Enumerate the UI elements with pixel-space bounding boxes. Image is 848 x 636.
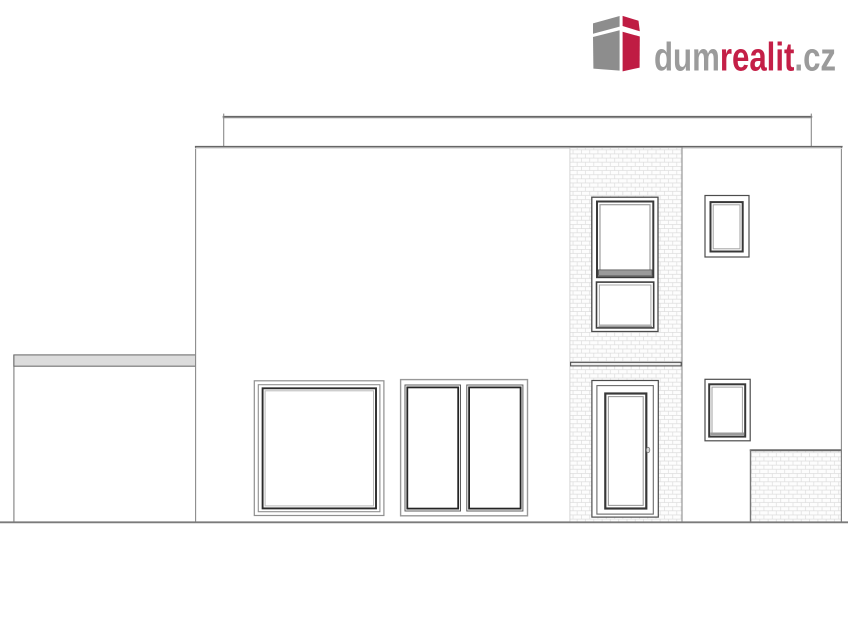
svg-text:dumrealit.cz: dumrealit.cz (654, 35, 836, 80)
